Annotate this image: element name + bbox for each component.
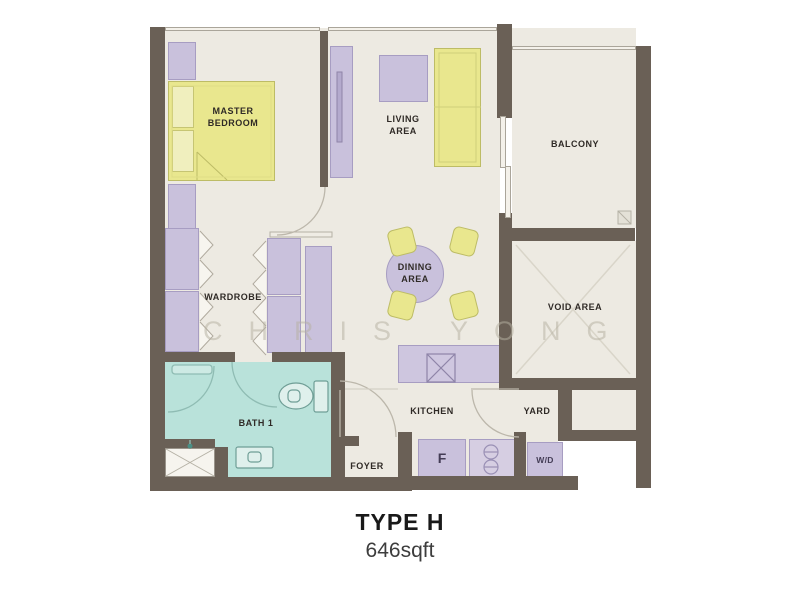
watermark: CHRIS YONG bbox=[203, 316, 634, 347]
plan-title: TYPE H bbox=[0, 509, 800, 536]
label-dining-area: DINING AREA bbox=[393, 262, 437, 285]
balcony-drain-icon bbox=[618, 211, 631, 224]
sink-icon bbox=[427, 354, 455, 382]
label-balcony: BALCONY bbox=[535, 139, 615, 151]
toilet-icon bbox=[279, 381, 328, 412]
vanity-sink-icon bbox=[236, 447, 273, 468]
bedroom-door-arc bbox=[277, 187, 325, 235]
label-foyer: FOYER bbox=[337, 461, 397, 473]
lineart-overlay bbox=[0, 0, 800, 594]
bath-door-arc bbox=[232, 362, 277, 407]
label-wardrobe: WARDROBE bbox=[193, 292, 273, 304]
bed-fold-lines bbox=[197, 152, 227, 180]
label-master-bedroom: MASTER BEDROOM bbox=[198, 106, 268, 129]
shower-area bbox=[168, 365, 214, 449]
label-bath1: BATH 1 bbox=[226, 418, 286, 430]
stove-burners-icon bbox=[484, 445, 498, 474]
plan-area: 646sqft bbox=[0, 539, 800, 563]
label-living-area: LIVING AREA bbox=[378, 114, 428, 137]
tv-icon bbox=[337, 72, 342, 142]
hatch-cross-lines bbox=[166, 449, 214, 476]
label-void-area: VOID AREA bbox=[535, 302, 615, 314]
label-yard: YARD bbox=[507, 406, 567, 418]
floorplan-canvas: F W/D bbox=[0, 0, 800, 594]
main-door-arc bbox=[340, 381, 398, 437]
label-kitchen: KITCHEN bbox=[397, 406, 467, 418]
